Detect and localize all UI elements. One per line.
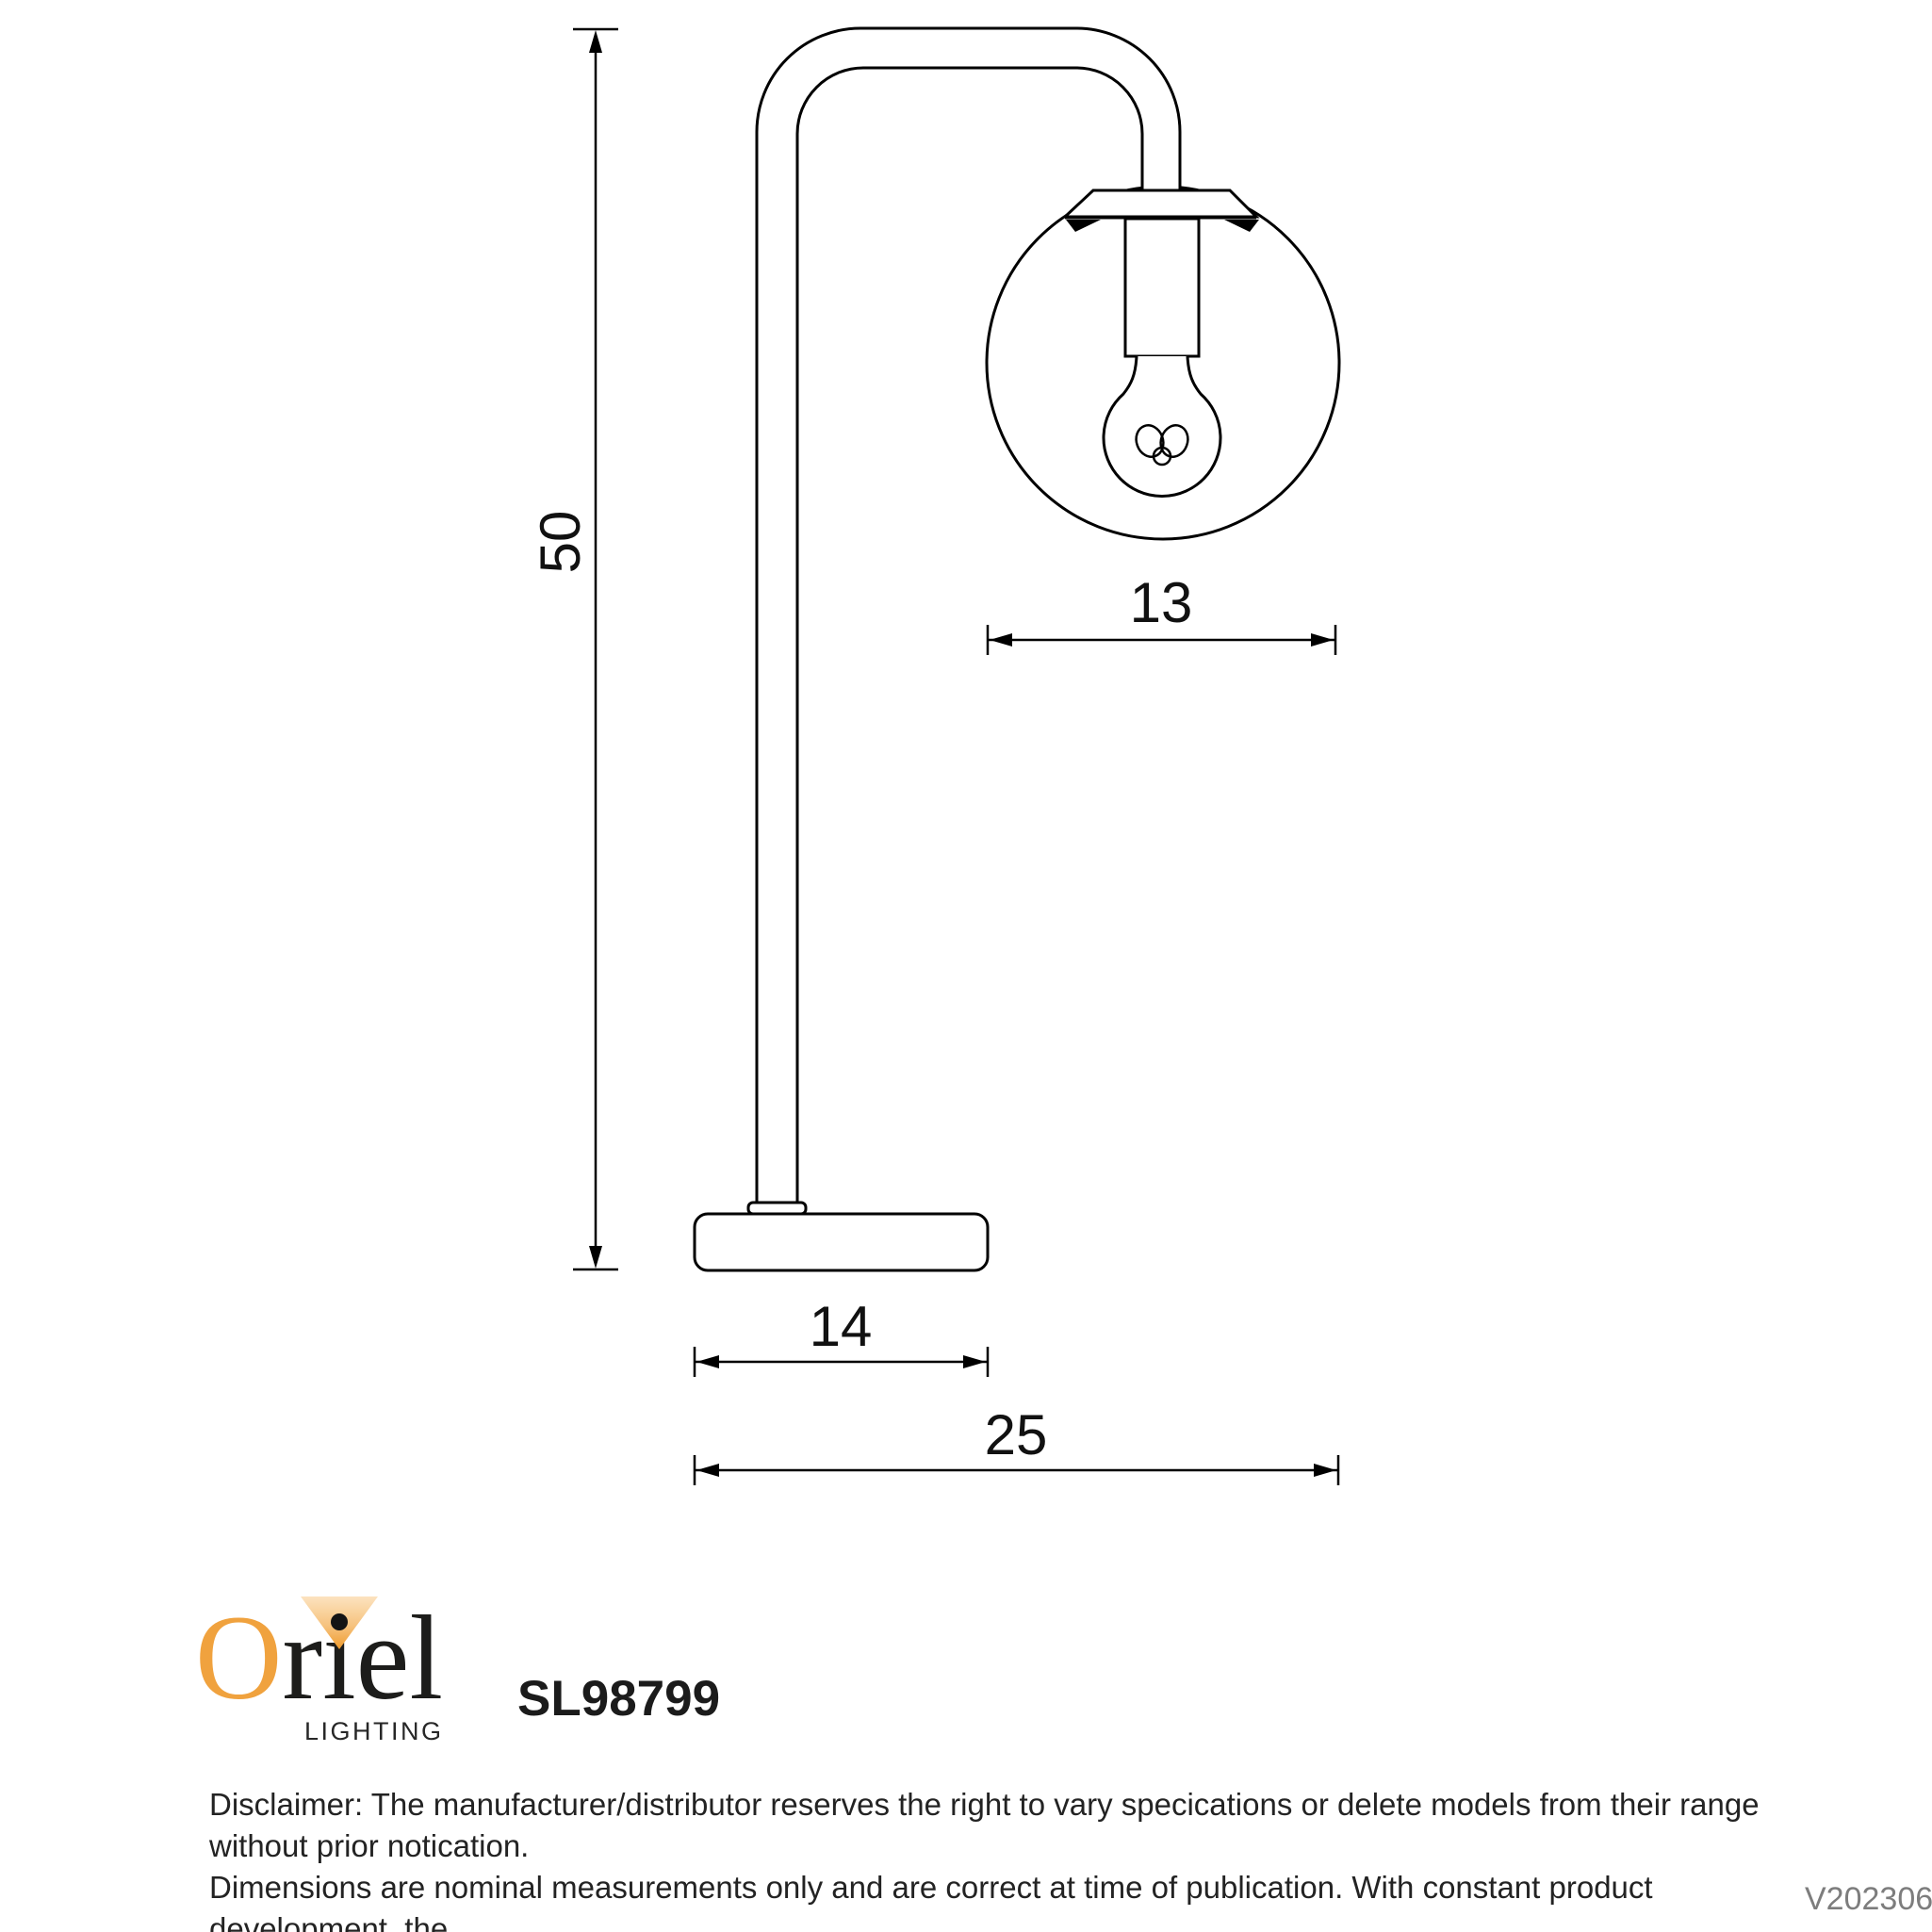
dimension-height-label: 50 bbox=[529, 511, 592, 574]
dimension-shade-width-label: 13 bbox=[1130, 571, 1193, 634]
dimension-overall-width-label: 25 bbox=[985, 1403, 1048, 1466]
disclaimer-line-2: Dimensions are nominal measurements only… bbox=[209, 1867, 1793, 1932]
socket-cone bbox=[1065, 190, 1256, 217]
arm-collar bbox=[748, 1203, 806, 1214]
disclaimer-line-1: Disclaimer: The manufacturer/distributor… bbox=[209, 1784, 1793, 1867]
lamp-glow-dot-icon bbox=[331, 1613, 348, 1630]
spec-sheet: 50 13 14 25 Orıel bbox=[0, 0, 1932, 1932]
disclaimer-text: Disclaimer: The manufacturer/distributor… bbox=[209, 1784, 1793, 1932]
dimension-height bbox=[573, 29, 618, 1269]
brand-letters-el: el bbox=[356, 1591, 443, 1725]
dimension-base-width-label: 14 bbox=[810, 1295, 873, 1358]
model-number: SL98799 bbox=[517, 1670, 720, 1727]
socket-tube bbox=[1125, 219, 1199, 356]
brand-letter-o: O bbox=[195, 1591, 282, 1725]
lamp-base bbox=[695, 1214, 988, 1270]
brand-tagline: LIGHTING bbox=[304, 1717, 444, 1746]
version-code: V202306 bbox=[1805, 1881, 1932, 1918]
